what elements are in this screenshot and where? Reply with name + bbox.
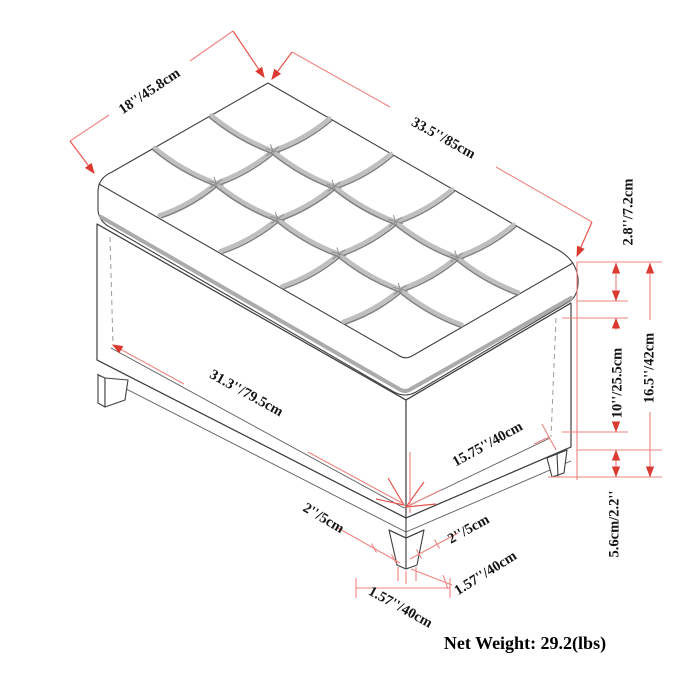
label-leg-height: 5.6cm/2.2'' xyxy=(606,491,622,558)
label-lid-thickness: 2.8''/7.2cm xyxy=(620,179,636,246)
ottoman-dimension-diagram: 18''/45.8cm 33.5''/85cm 2.8''/7.2cm 10''… xyxy=(0,0,700,700)
label-total-height: 16.5''/42cm xyxy=(641,333,657,403)
label-interior-height: 10''/25.5cm xyxy=(609,348,625,418)
diagram-canvas: 18''/45.8cm 33.5''/85cm 2.8''/7.2cm 10''… xyxy=(0,0,700,700)
left-leg xyxy=(98,375,105,407)
net-weight-text: Net Weight: 29.2(lbs) xyxy=(444,633,606,654)
